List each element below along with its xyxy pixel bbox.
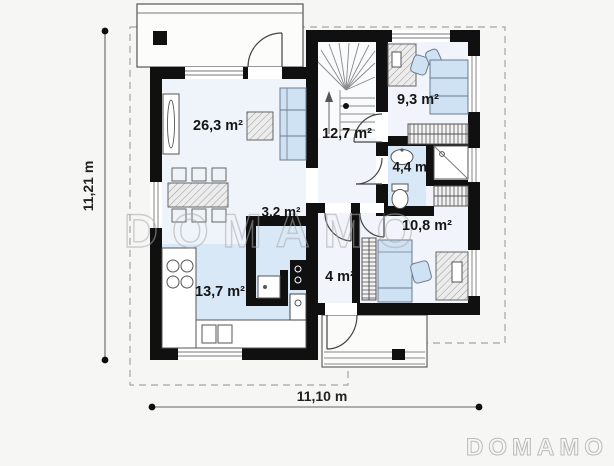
- wardrobe-lower-icon: [434, 186, 468, 206]
- room-label-kitchen: 13,7 m²: [195, 284, 245, 300]
- oven-icon: [290, 260, 306, 290]
- watermark-corner: DOMAMO: [466, 434, 608, 462]
- entrance-porch: [322, 315, 427, 367]
- desk-lower-icon: [436, 252, 468, 300]
- radiator-icon: [163, 94, 179, 154]
- shower-icon: [434, 146, 468, 179]
- dimension-label-horizontal: 11,10 m: [297, 388, 348, 404]
- wardrobe-upper-icon: [408, 124, 468, 144]
- room-label-bedroom-upper: 9,3 m²: [397, 92, 439, 108]
- chimney-icon: [153, 31, 167, 45]
- fridge-icon: [290, 294, 306, 320]
- coffee-table-icon: [247, 112, 273, 140]
- room-label-living-room: 26,3 m²: [193, 118, 243, 134]
- room-label-bathroom: 4,4 m²: [392, 160, 431, 175]
- room-label-hall-staircase: 12,7 m²: [322, 126, 372, 142]
- room-label-utility: 3,2 m²: [261, 205, 300, 220]
- sofa-icon: [280, 88, 306, 160]
- room-label-entry-hall: 4 m²: [325, 269, 355, 285]
- floor-plan-page: DOMAMO DOMAMO 26,3 m² 12,7 m² 9,3 m² 4,4…: [0, 0, 614, 466]
- porch-marker: [392, 349, 405, 360]
- terrace: [137, 4, 303, 67]
- washing-machine-icon: [258, 276, 280, 298]
- dimension-label-vertical: 11,21 m: [80, 161, 96, 212]
- room-label-bedroom-lower: 10,8 m²: [402, 218, 452, 234]
